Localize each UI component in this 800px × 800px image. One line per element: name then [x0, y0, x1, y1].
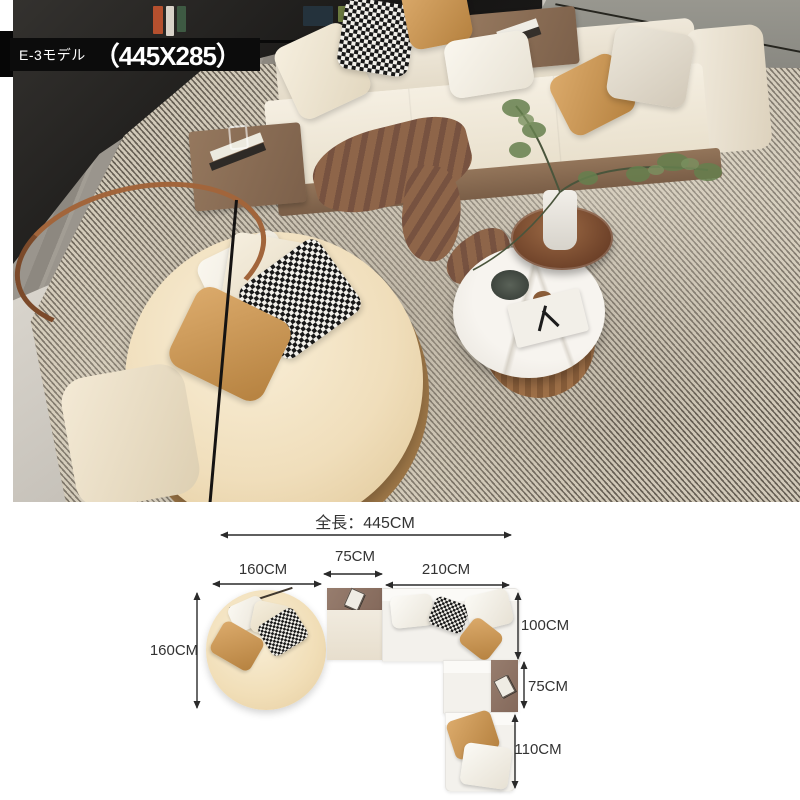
magazine-art	[542, 310, 560, 327]
shelf-books	[166, 6, 174, 36]
dim-label-160-top: 160CM	[239, 561, 287, 578]
shelf-books	[177, 6, 186, 32]
model-banner: E-3モデル （445X285）	[10, 38, 260, 71]
product-photo	[13, 0, 800, 502]
model-label: E-3モデル	[19, 45, 86, 65]
dim-label-110-right: 110CM	[514, 741, 561, 758]
dim-label-100-right: 100CM	[521, 617, 569, 634]
drinking-glass	[228, 125, 249, 151]
shelf-books	[303, 6, 333, 26]
size-label: （445X285）	[94, 36, 241, 73]
green-branch	[468, 92, 778, 277]
dim-label-total: 全長：445CM	[315, 509, 415, 533]
product-image: E-3モデル （445X285）	[0, 0, 800, 800]
dim-label-75-right: 75CM	[528, 678, 568, 695]
dimension-arrows	[0, 502, 800, 800]
shelf-books	[153, 6, 163, 34]
dim-label-210-top: 210CM	[422, 561, 470, 578]
dim-label-160-left: 160CM	[150, 642, 198, 659]
dim-label-75-top: 75CM	[335, 548, 375, 565]
chaise-armrest	[57, 360, 203, 502]
